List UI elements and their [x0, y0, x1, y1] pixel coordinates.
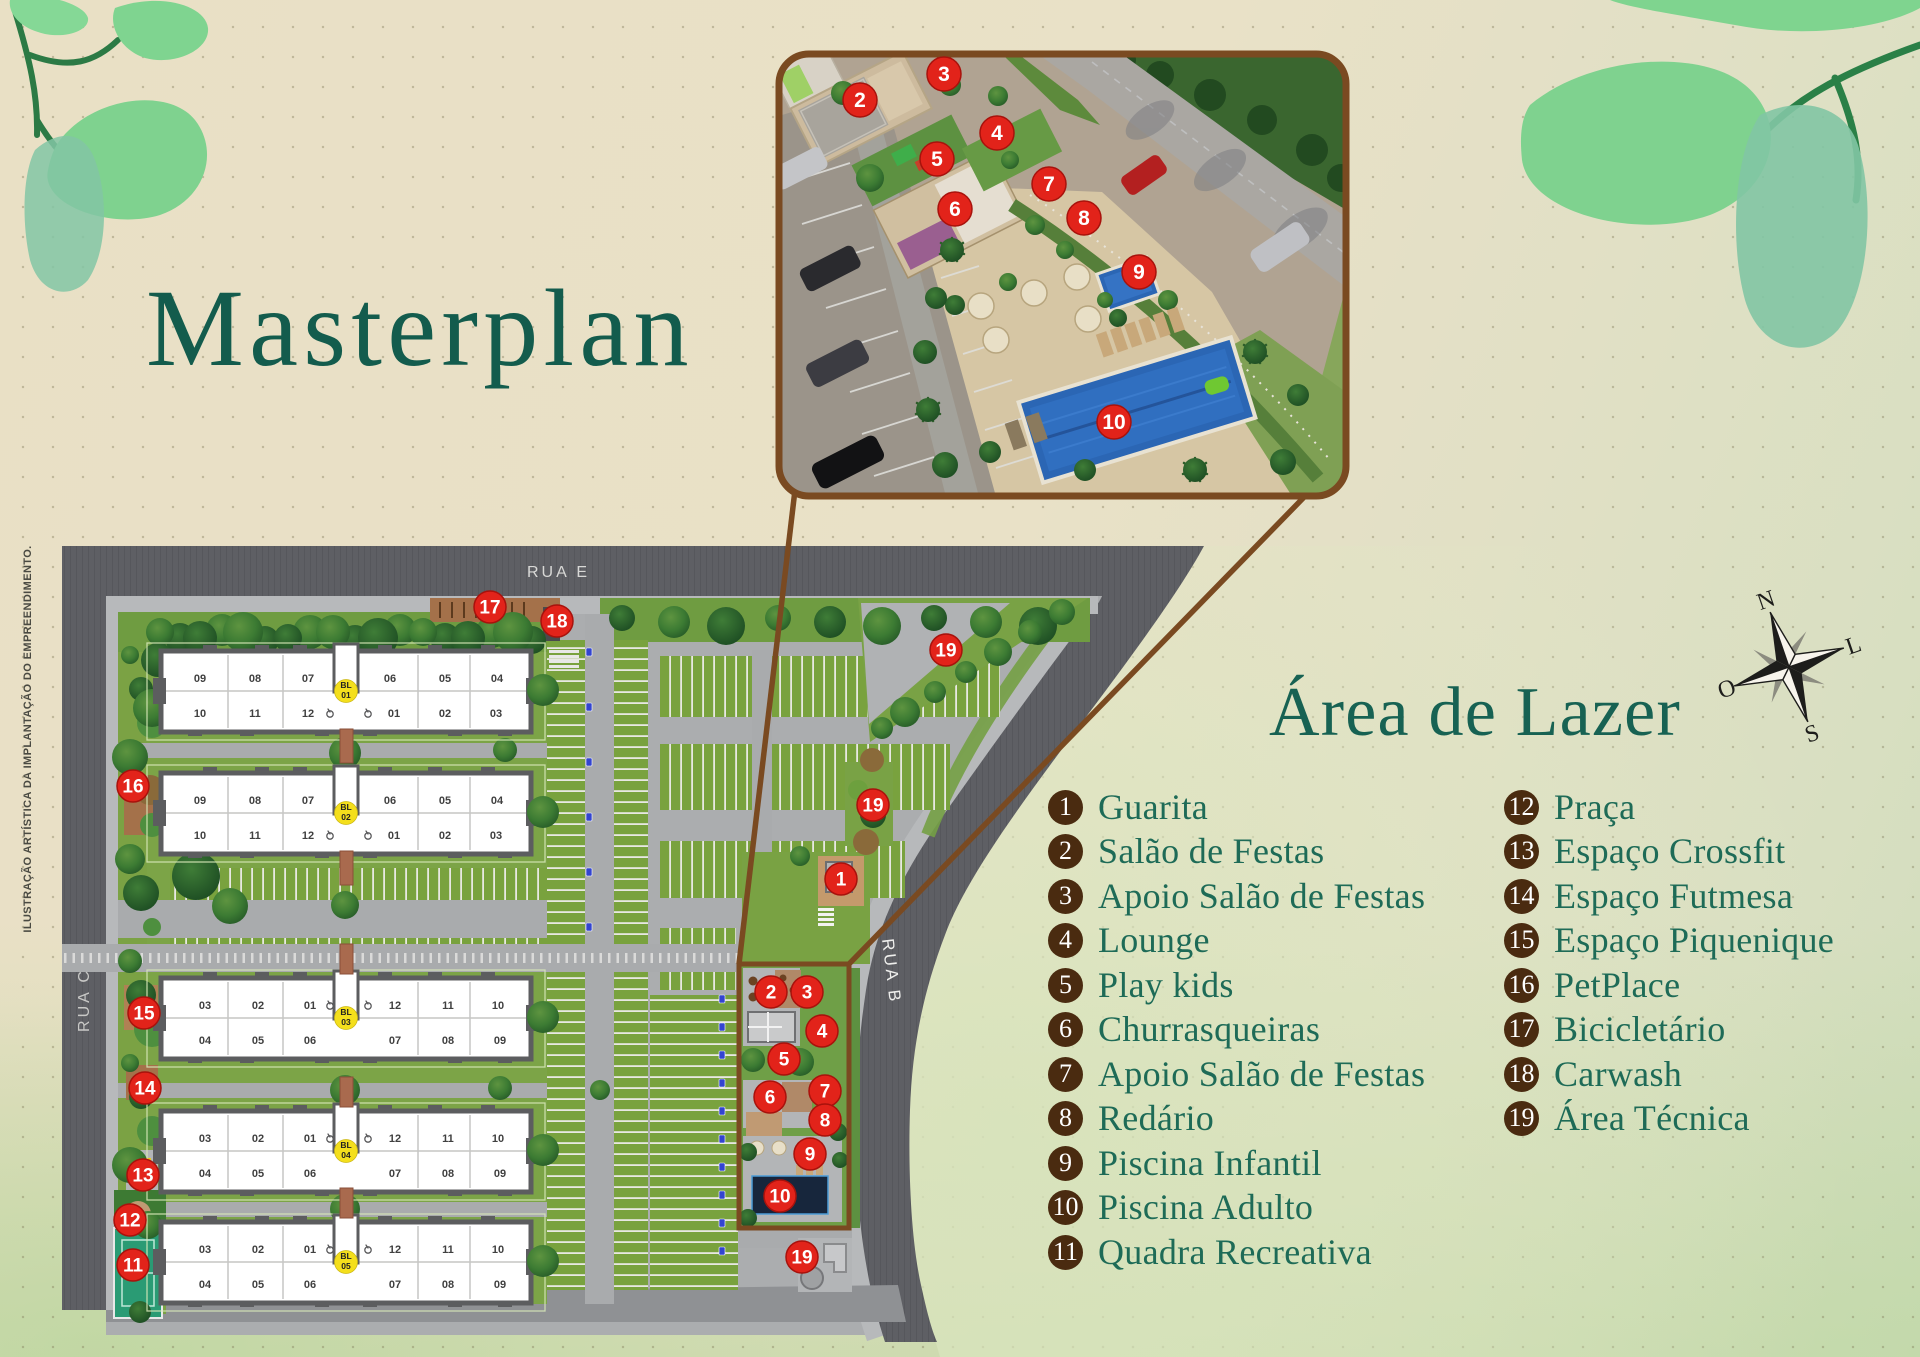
svg-text:06: 06 [304, 1035, 316, 1047]
svg-text:03: 03 [199, 1000, 211, 1012]
svg-text:08: 08 [442, 1035, 454, 1047]
svg-text:13: 13 [132, 1166, 153, 1187]
svg-text:5: 5 [931, 148, 943, 171]
svg-text:05: 05 [252, 1168, 264, 1180]
svg-text:14: 14 [134, 1079, 156, 1100]
svg-text:11: 11 [249, 830, 261, 842]
svg-text:15: 15 [133, 1004, 155, 1025]
svg-text:06: 06 [304, 1168, 316, 1180]
svg-text:08: 08 [442, 1279, 454, 1291]
svg-text:03: 03 [490, 708, 502, 720]
svg-text:8: 8 [820, 1111, 831, 1132]
svg-text:2: 2 [854, 89, 866, 112]
svg-text:04: 04 [491, 673, 504, 685]
svg-text:06: 06 [384, 795, 396, 807]
svg-text:RUA E: RUA E [527, 564, 590, 581]
svg-text:19: 19 [935, 641, 956, 662]
svg-text:01: 01 [304, 1133, 316, 1145]
svg-text:10: 10 [194, 708, 206, 720]
svg-text:02: 02 [341, 812, 351, 822]
svg-text:4: 4 [817, 1022, 828, 1043]
svg-text:04: 04 [341, 1150, 351, 1160]
svg-text:12: 12 [389, 1000, 401, 1012]
svg-text:07: 07 [302, 673, 314, 685]
svg-text:01: 01 [304, 1000, 316, 1012]
svg-text:09: 09 [494, 1035, 506, 1047]
svg-text:03: 03 [341, 1017, 351, 1027]
svg-text:02: 02 [439, 830, 451, 842]
svg-text:5: 5 [779, 1050, 790, 1071]
svg-text:09: 09 [494, 1168, 506, 1180]
svg-text:08: 08 [249, 795, 261, 807]
svg-text:08: 08 [249, 673, 261, 685]
svg-text:16: 16 [122, 777, 143, 798]
svg-text:3: 3 [938, 63, 950, 86]
svg-text:09: 09 [194, 673, 206, 685]
svg-text:10: 10 [492, 1133, 504, 1145]
svg-text:01: 01 [341, 690, 351, 700]
svg-text:19: 19 [791, 1248, 812, 1269]
svg-text:12: 12 [389, 1244, 401, 1256]
svg-text:9: 9 [805, 1145, 816, 1166]
svg-text:7: 7 [820, 1082, 831, 1103]
svg-text:03: 03 [490, 830, 502, 842]
svg-text:09: 09 [194, 795, 206, 807]
svg-text:19: 19 [862, 796, 883, 817]
svg-text:6: 6 [949, 198, 961, 221]
svg-text:02: 02 [439, 708, 451, 720]
svg-text:BL: BL [340, 680, 351, 690]
svg-text:10: 10 [194, 830, 206, 842]
svg-text:01: 01 [304, 1244, 316, 1256]
svg-text:02: 02 [252, 1000, 264, 1012]
svg-text:3: 3 [802, 983, 813, 1004]
svg-text:05: 05 [252, 1035, 264, 1047]
svg-text:07: 07 [389, 1279, 401, 1291]
svg-text:10: 10 [1102, 411, 1125, 434]
svg-text:11: 11 [249, 708, 261, 720]
svg-text:12: 12 [389, 1133, 401, 1145]
svg-text:04: 04 [199, 1168, 212, 1180]
svg-text:06: 06 [304, 1279, 316, 1291]
svg-text:05: 05 [439, 795, 451, 807]
svg-text:09: 09 [494, 1279, 506, 1291]
svg-text:17: 17 [479, 598, 500, 619]
svg-text:7: 7 [1043, 173, 1055, 196]
svg-text:07: 07 [389, 1168, 401, 1180]
svg-text:10: 10 [492, 1000, 504, 1012]
svg-text:10: 10 [492, 1244, 504, 1256]
svg-text:04: 04 [491, 795, 504, 807]
svg-text:08: 08 [442, 1168, 454, 1180]
svg-text:4: 4 [991, 122, 1003, 145]
svg-text:12: 12 [302, 830, 314, 842]
svg-text:02: 02 [252, 1244, 264, 1256]
svg-text:11: 11 [442, 1133, 454, 1145]
svg-text:11: 11 [442, 1000, 454, 1012]
svg-text:03: 03 [199, 1244, 211, 1256]
svg-text:04: 04 [199, 1035, 212, 1047]
svg-text:RUA C: RUA C [76, 968, 93, 1032]
svg-text:2: 2 [766, 983, 777, 1004]
svg-text:03: 03 [199, 1133, 211, 1145]
svg-text:8: 8 [1078, 207, 1090, 230]
svg-text:BL: BL [340, 1251, 351, 1261]
svg-text:BL: BL [340, 802, 351, 812]
svg-text:12: 12 [119, 1211, 140, 1232]
svg-text:05: 05 [341, 1261, 351, 1271]
svg-text:11: 11 [123, 1256, 144, 1277]
svg-text:05: 05 [252, 1279, 264, 1291]
svg-text:02: 02 [252, 1133, 264, 1145]
svg-text:07: 07 [302, 795, 314, 807]
svg-text:05: 05 [439, 673, 451, 685]
svg-text:06: 06 [384, 673, 396, 685]
svg-text:12: 12 [302, 708, 314, 720]
svg-text:01: 01 [388, 830, 400, 842]
svg-text:01: 01 [388, 708, 400, 720]
svg-text:04: 04 [199, 1279, 212, 1291]
svg-text:10: 10 [769, 1187, 790, 1208]
svg-text:07: 07 [389, 1035, 401, 1047]
svg-text:1: 1 [836, 870, 847, 891]
svg-text:18: 18 [546, 612, 567, 633]
svg-text:BL: BL [340, 1140, 351, 1150]
svg-text:BL: BL [340, 1007, 351, 1017]
svg-text:11: 11 [442, 1244, 454, 1256]
svg-text:6: 6 [765, 1088, 776, 1109]
svg-text:9: 9 [1133, 261, 1145, 284]
